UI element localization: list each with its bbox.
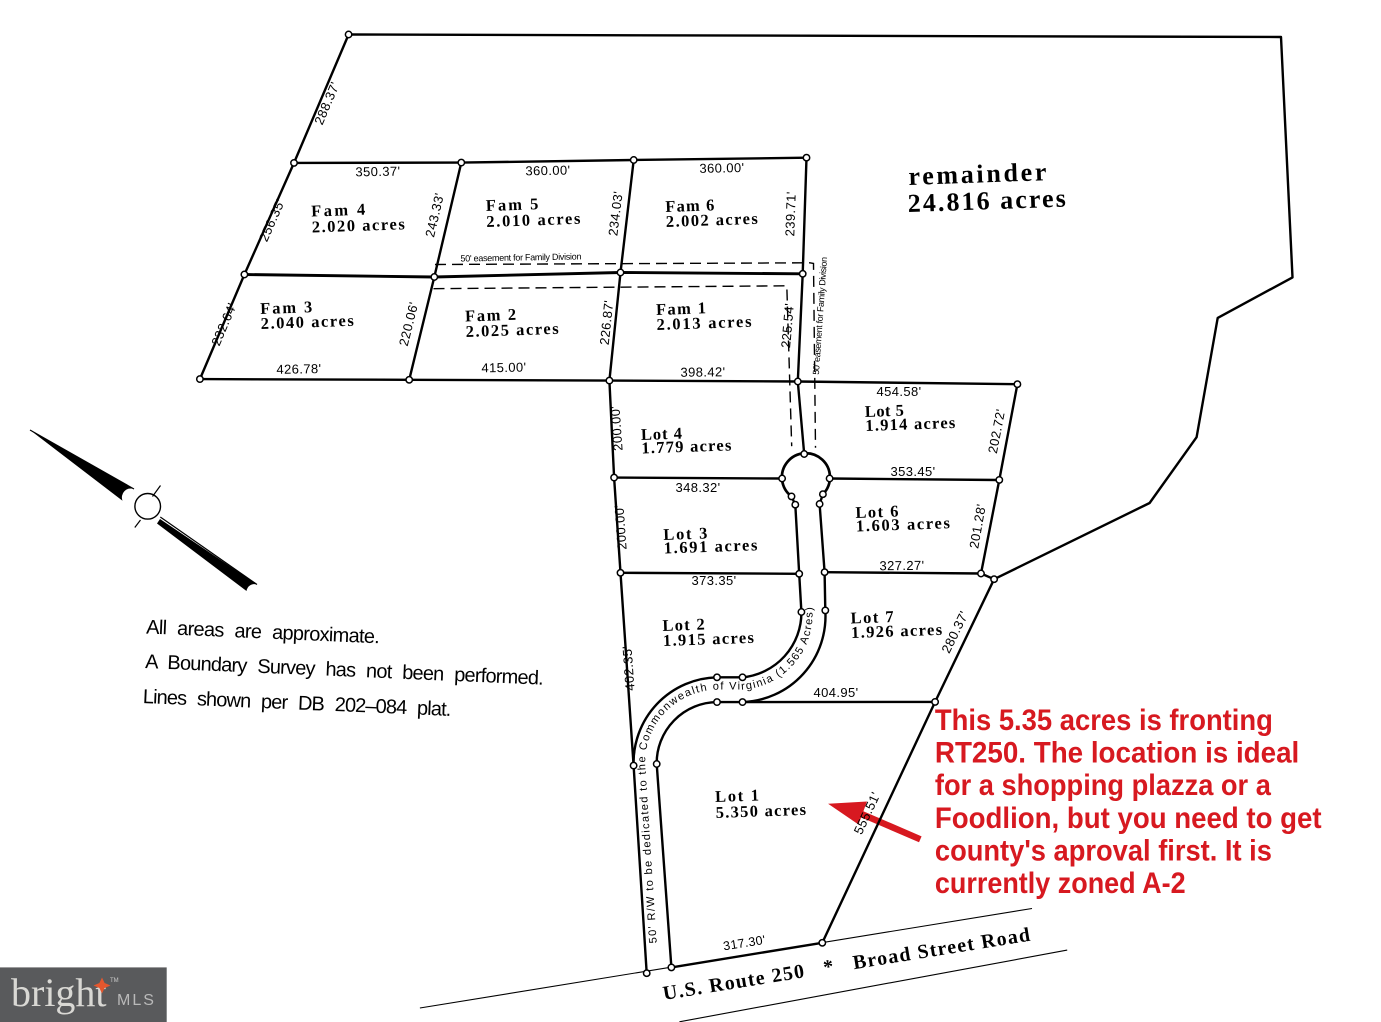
svg-text:50' easement for Family Div: 50' easement for Family Division [460, 251, 581, 263]
svg-text:360.00': 360.00' [699, 160, 744, 176]
svg-text:239.71': 239.71' [782, 191, 799, 237]
svg-text:200.00': 200.00' [611, 504, 629, 550]
svg-text:454.58': 454.58' [876, 384, 921, 399]
svg-text:24.816 acres: 24.816 acres [907, 184, 1066, 218]
svg-text:This 5.35 acres is fronting: This 5.35 acres is fronting [935, 704, 1273, 737]
svg-text:402.35': 402.35' [619, 645, 637, 691]
svg-text:Foodlion, but you need to get: Foodlion, but you need to get [935, 802, 1322, 835]
svg-text:TM: TM [110, 978, 119, 984]
svg-text:426.78': 426.78' [276, 361, 321, 377]
svg-text:currently zoned A-2: currently zoned A-2 [935, 867, 1186, 900]
svg-text:RT250. The location is ideal: RT250. The location is ideal [935, 737, 1299, 770]
svg-text:348.32': 348.32' [675, 480, 720, 495]
svg-text:353.45': 353.45' [890, 464, 935, 479]
svg-text:398.42': 398.42' [680, 364, 725, 379]
svg-text:373.35': 373.35' [691, 573, 736, 588]
svg-text:bright: bright [11, 970, 107, 1015]
svg-text:for a shopping plazza or a: for a shopping plazza or a [935, 769, 1271, 802]
svg-text:327.27': 327.27' [879, 558, 924, 573]
svg-text:200.00': 200.00' [607, 405, 625, 451]
svg-text:MLS: MLS [117, 992, 156, 1009]
svg-text:360.00': 360.00' [525, 163, 570, 179]
svg-text:404.95': 404.95' [813, 685, 858, 700]
svg-text:350.37': 350.37' [355, 164, 400, 180]
svg-text:415.00': 415.00' [481, 360, 526, 376]
svg-text:county's aproval first. It is: county's aproval first. It is [935, 834, 1272, 867]
